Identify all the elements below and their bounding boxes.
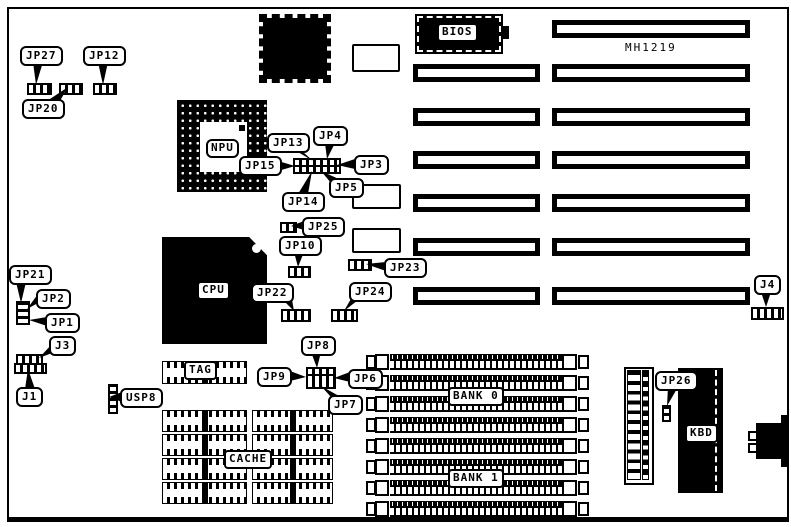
callout-jp26: JP26 [655,371,698,391]
callout-jp3: JP3 [354,155,389,175]
callout-jp6: JP6 [348,369,383,389]
callout-j1: J1 [16,387,43,407]
cache-label: CACHE [224,450,272,469]
callout-jp10: JP10 [279,236,322,256]
kbd-label: KBD [685,424,718,443]
callout-jp12: JP12 [83,46,126,66]
motherboard-diagram: BIOS MH1219 NPU CPU TAG CACHE [0,0,791,527]
callout-jp22: JP22 [251,283,294,303]
callout-jp5: JP5 [329,178,364,198]
bios-label: BIOS [437,23,478,42]
bank0-label: BANK 0 [448,387,504,406]
bank1-label: BANK 1 [448,469,504,488]
callout-jp14: JP14 [282,192,325,212]
callout-usp8: USP8 [120,388,163,408]
callout-jp20: JP20 [22,99,65,119]
callout-jp2: JP2 [36,289,71,309]
cpu-label: CPU [197,281,230,300]
callout-jp15: JP15 [239,156,282,176]
callout-jp27: JP27 [20,46,63,66]
callout-jp21: JP21 [9,265,52,285]
callout-j4: J4 [754,275,781,295]
callout-jp24: JP24 [349,282,392,302]
callout-jp25: JP25 [302,217,345,237]
callout-jp9: JP9 [257,367,292,387]
callout-jp1: JP1 [45,313,80,333]
callout-j3: J3 [49,336,76,356]
callout-jp4: JP4 [313,126,348,146]
callout-jp7: JP7 [328,395,363,415]
callout-jp8: JP8 [301,336,336,356]
callout-jp13: JP13 [267,133,310,153]
callout-jp23: JP23 [384,258,427,278]
npu-label: NPU [206,139,239,158]
tag-label: TAG [184,361,217,380]
